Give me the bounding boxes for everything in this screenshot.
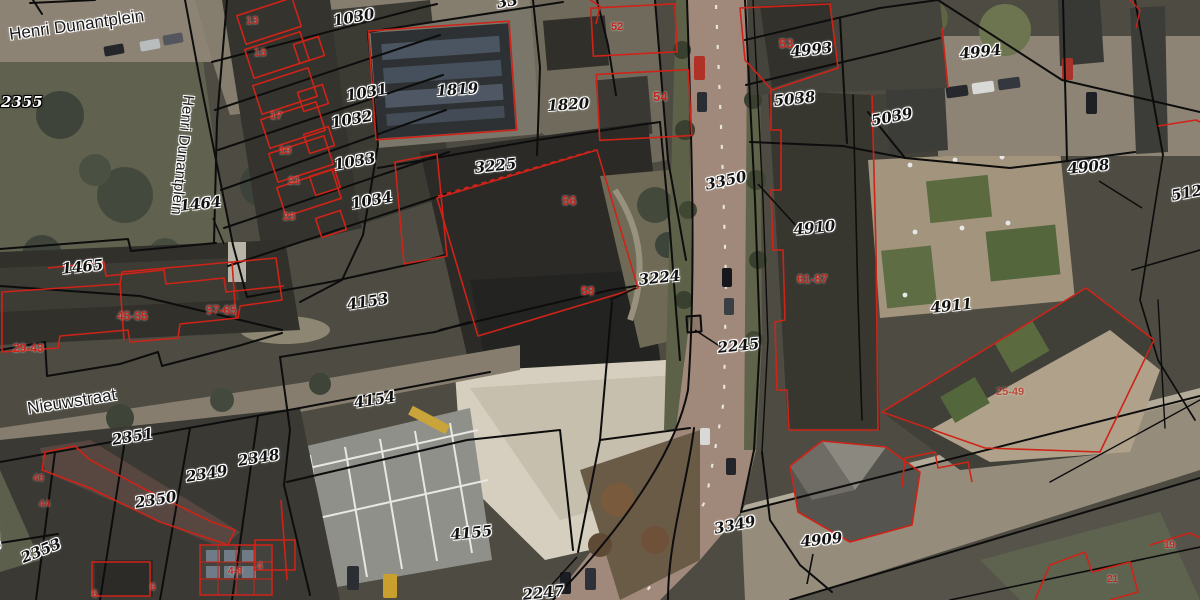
map-viewport[interactable]: Henri DunantpleinHenri DunantpleinNieuws… [0, 0, 1200, 600]
map-canvas [0, 0, 1200, 600]
